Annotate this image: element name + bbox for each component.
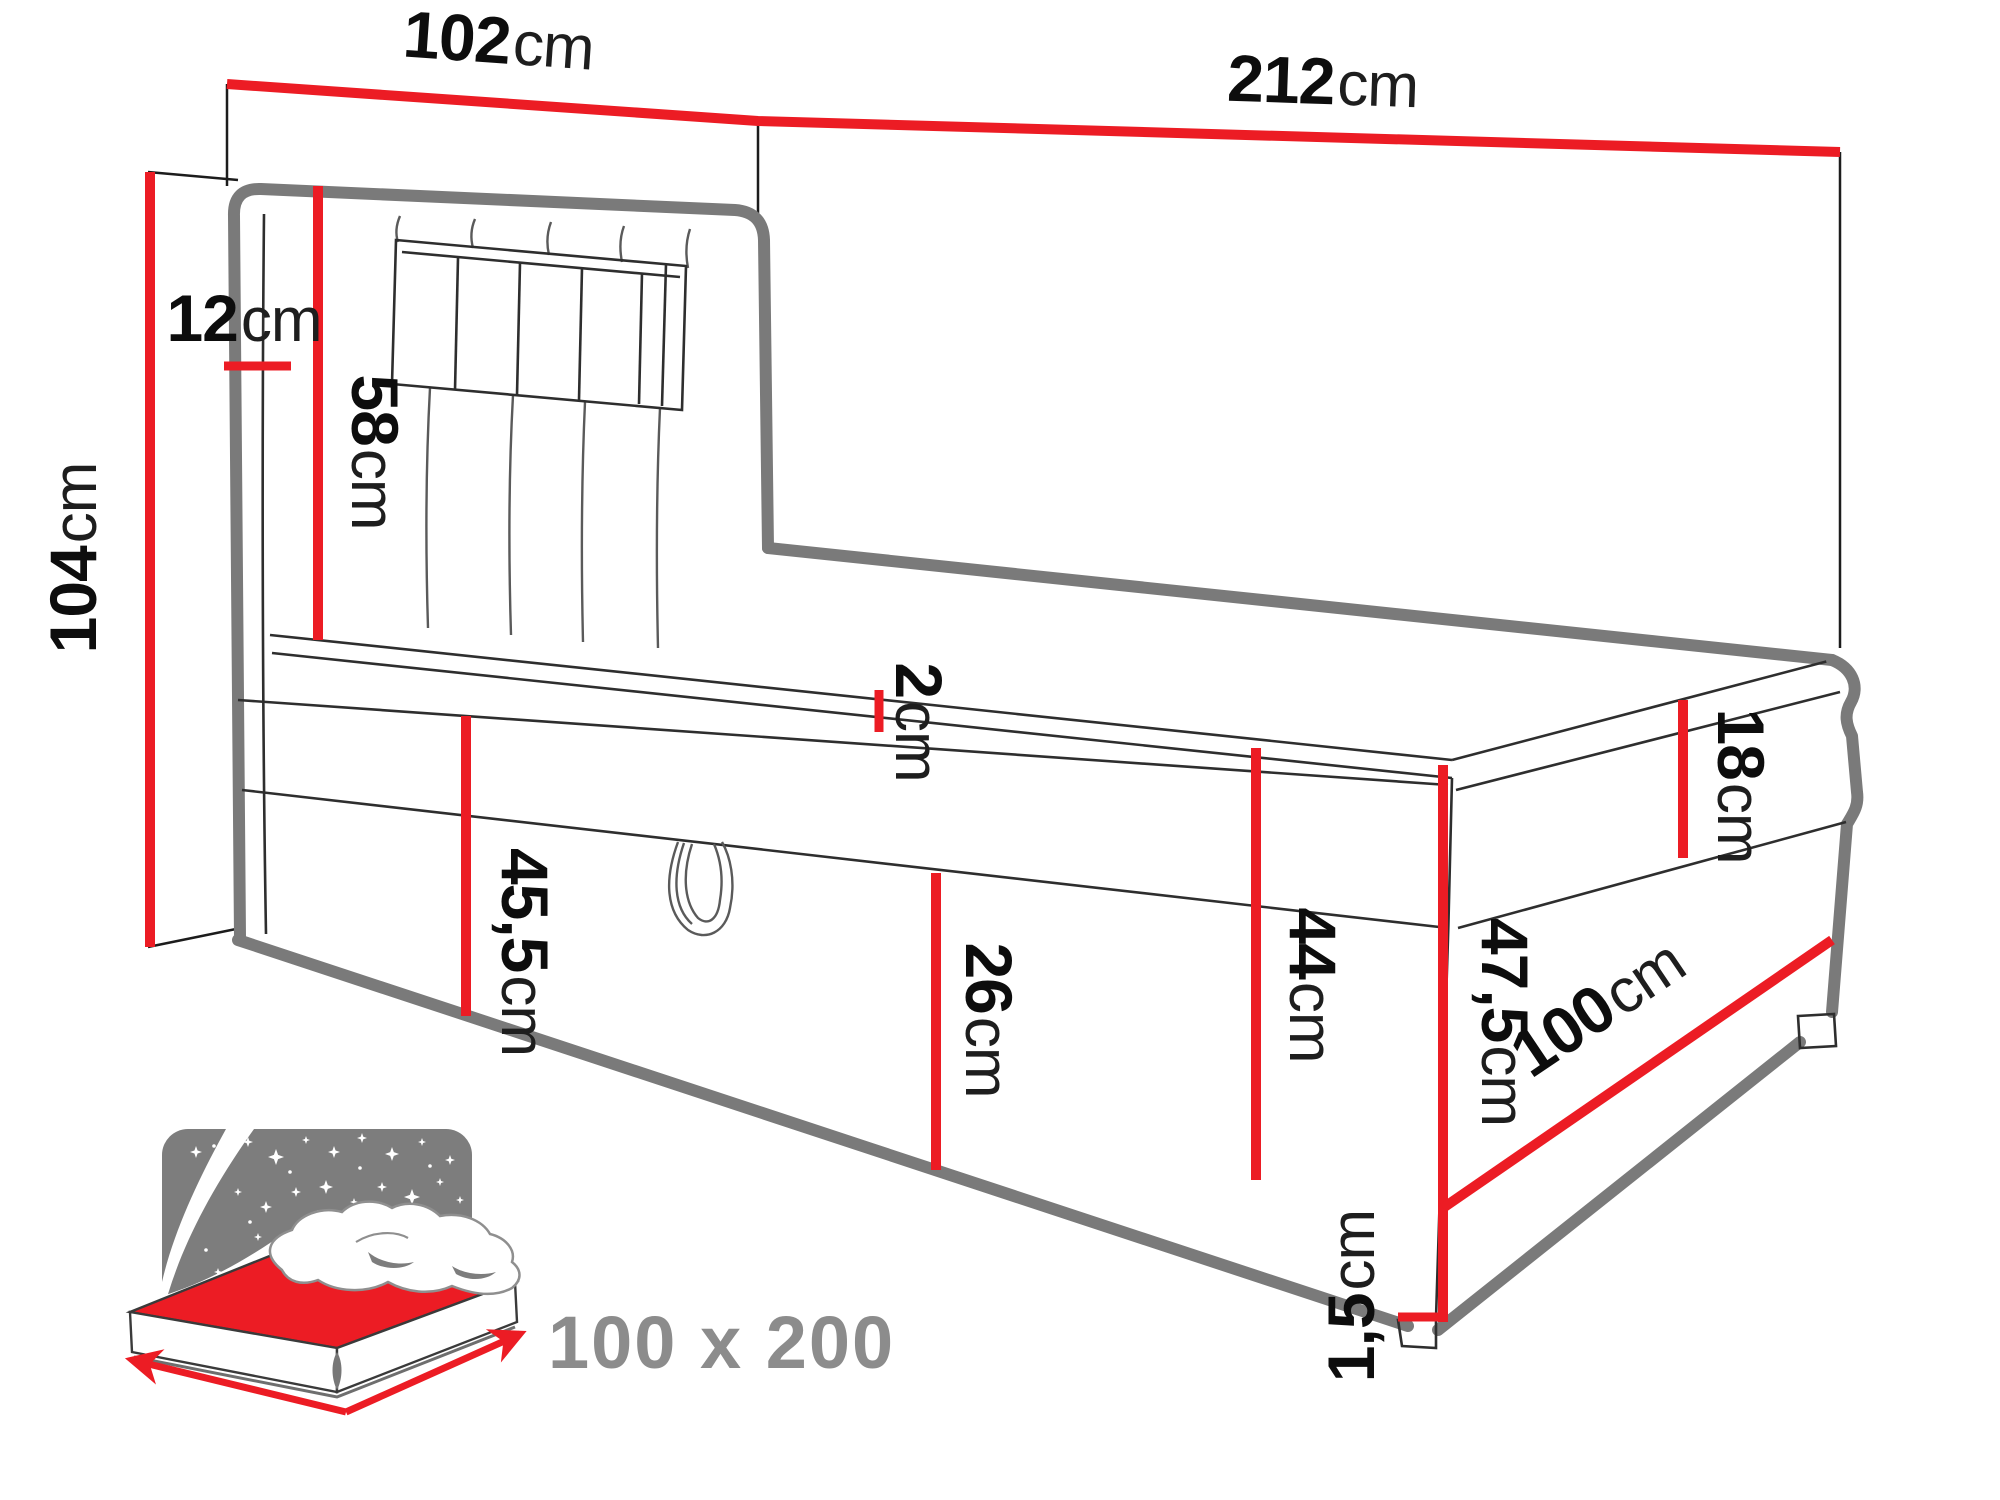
topper-label: 2cm xyxy=(882,662,956,781)
mattress-right-bulge xyxy=(1832,660,1857,1012)
storage-depth-label: 26cm xyxy=(952,942,1026,1097)
total-length-label: 212cm xyxy=(1226,41,1419,122)
star-dot-icon xyxy=(248,1220,252,1224)
total-height-label: 104cm xyxy=(36,463,110,654)
star-dot-icon xyxy=(288,1170,292,1174)
feet-height-label: 1,5cm xyxy=(1314,1210,1388,1382)
bed-size-icon: 100 x 200 xyxy=(130,1129,895,1412)
height-top-tick xyxy=(148,172,238,180)
star-dot-icon xyxy=(428,1164,432,1168)
bed-dimension-diagram: 102cm 212cm 12cm 58cm 104cm 2cm 45,5cm 2… xyxy=(0,0,2000,1500)
star-dot-icon xyxy=(212,1144,216,1148)
wall-gap-label: 12cm xyxy=(166,281,321,355)
storage-flap-seam-front xyxy=(242,790,1448,928)
headboard-width-label: 102cm xyxy=(401,0,596,84)
diagram-canvas: 102cm 212cm 12cm 58cm 104cm 2cm 45,5cm 2… xyxy=(0,0,2000,1500)
bed-drawing xyxy=(234,189,1857,1348)
side-height-label: 44cm xyxy=(1276,907,1350,1062)
dim-top-width-line xyxy=(227,84,1840,152)
star-dot-icon xyxy=(358,1166,362,1170)
headboard-panel-label: 58cm xyxy=(338,374,412,529)
mattress-rear-edge xyxy=(768,548,1832,660)
storage-flap-seam-right xyxy=(1458,822,1846,928)
mattress-height-label: 18cm xyxy=(1704,708,1778,863)
headboard-tufting-seams xyxy=(396,216,690,648)
storage-handle-icon xyxy=(669,842,732,935)
height-bottom-tick xyxy=(148,929,236,947)
base-height-label: 45,5cm xyxy=(488,848,562,1056)
size-label: 100 x 200 xyxy=(548,1301,895,1384)
base-top-seam-right xyxy=(1456,692,1840,790)
star-dot-icon xyxy=(204,1248,208,1252)
mattress-top-edge xyxy=(270,635,1452,760)
pillows-icon xyxy=(270,1202,520,1294)
headboard-panel xyxy=(392,240,686,410)
